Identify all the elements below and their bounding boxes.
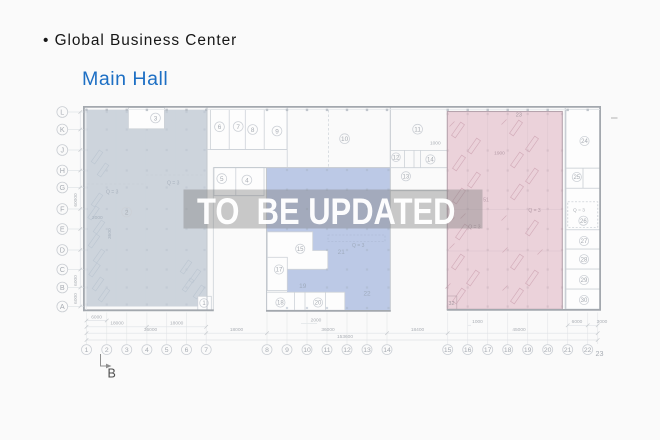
svg-text:14: 14 <box>383 347 391 354</box>
svg-text:2000: 2000 <box>311 318 322 324</box>
svg-text:9: 9 <box>275 128 279 135</box>
svg-text:22: 22 <box>363 291 371 298</box>
svg-text:21: 21 <box>338 249 346 256</box>
svg-text:8: 8 <box>251 127 255 134</box>
svg-text:36000: 36000 <box>144 327 158 333</box>
svg-text:28: 28 <box>581 257 588 263</box>
svg-text:8: 8 <box>265 347 269 354</box>
svg-text:A: A <box>60 302 65 311</box>
svg-text:45000: 45000 <box>512 327 526 333</box>
svg-text:19: 19 <box>299 283 307 290</box>
svg-text:B: B <box>60 283 65 292</box>
svg-text:11: 11 <box>323 347 330 354</box>
svg-text:15: 15 <box>297 247 304 253</box>
svg-text:6000: 6000 <box>73 275 79 286</box>
svg-text:6000: 6000 <box>73 293 79 304</box>
svg-text:Q = 3: Q = 3 <box>352 243 365 249</box>
svg-text:3600: 3600 <box>107 228 113 239</box>
svg-text:17: 17 <box>276 268 283 274</box>
svg-text:TO BE UPDATED: TO BE UPDATED <box>197 190 456 232</box>
svg-text:27: 27 <box>581 239 588 245</box>
svg-text:5: 5 <box>220 176 224 183</box>
svg-text:9: 9 <box>285 347 289 354</box>
svg-text:1: 1 <box>85 347 89 354</box>
svg-text:26: 26 <box>580 219 587 225</box>
svg-text:D: D <box>60 246 65 255</box>
svg-text:18000: 18000 <box>170 321 184 327</box>
svg-text:19: 19 <box>524 347 532 354</box>
svg-text:G: G <box>60 183 66 192</box>
svg-text:18: 18 <box>504 347 512 354</box>
svg-text:13: 13 <box>403 174 410 180</box>
svg-text:14: 14 <box>427 158 434 164</box>
svg-text:B: B <box>108 367 116 381</box>
svg-text:H: H <box>60 166 65 175</box>
svg-text:15: 15 <box>444 347 452 354</box>
svg-text:2: 2 <box>105 347 109 354</box>
svg-text:2000: 2000 <box>92 215 103 221</box>
svg-text:153600: 153600 <box>337 334 353 340</box>
svg-text:Q = 3: Q = 3 <box>528 208 541 214</box>
svg-text:1000: 1000 <box>472 319 483 325</box>
svg-text:6000: 6000 <box>572 319 583 325</box>
svg-text:23: 23 <box>596 349 604 358</box>
svg-text:1900: 1900 <box>494 150 505 156</box>
svg-text:18: 18 <box>277 301 284 307</box>
svg-text:12: 12 <box>393 155 400 161</box>
svg-text:18000: 18000 <box>110 321 124 327</box>
svg-text:20: 20 <box>544 347 552 354</box>
svg-text:3: 3 <box>125 347 129 354</box>
svg-text:6000: 6000 <box>91 314 102 320</box>
svg-text:J: J <box>61 146 65 155</box>
svg-text:L: L <box>60 108 64 117</box>
svg-text:32: 32 <box>448 301 454 307</box>
svg-text:3: 3 <box>154 115 158 122</box>
svg-text:17: 17 <box>484 347 492 354</box>
svg-text:6: 6 <box>185 347 189 354</box>
svg-text:6: 6 <box>218 124 222 131</box>
svg-text:20: 20 <box>315 301 322 307</box>
svg-text:4: 4 <box>245 177 249 184</box>
svg-text:5: 5 <box>165 347 169 354</box>
svg-text:30: 30 <box>581 298 588 304</box>
svg-text:18400: 18400 <box>411 327 425 333</box>
svg-text:11: 11 <box>414 127 421 134</box>
svg-text:F: F <box>60 205 65 214</box>
svg-text:60000: 60000 <box>73 193 79 207</box>
svg-text:10: 10 <box>303 347 311 354</box>
svg-text:K: K <box>60 125 65 134</box>
svg-text:16: 16 <box>464 347 472 354</box>
svg-text:18000: 18000 <box>230 327 244 333</box>
svg-text:36000: 36000 <box>321 327 335 333</box>
svg-text:Q = 3: Q = 3 <box>573 208 585 214</box>
svg-text:13: 13 <box>363 347 371 354</box>
svg-text:7: 7 <box>236 124 240 131</box>
svg-text:23: 23 <box>516 113 522 119</box>
svg-text:E: E <box>60 225 65 234</box>
svg-text:21: 21 <box>564 347 572 354</box>
svg-text:51: 51 <box>483 197 489 203</box>
svg-text:4: 4 <box>145 347 149 354</box>
svg-text:24: 24 <box>581 139 588 145</box>
svg-text:29: 29 <box>581 278 588 284</box>
svg-text:3000: 3000 <box>597 319 608 325</box>
svg-text:12: 12 <box>343 347 351 354</box>
svg-text:7: 7 <box>204 347 208 354</box>
svg-text:2: 2 <box>125 209 129 216</box>
svg-text:C: C <box>60 265 65 274</box>
svg-text:10: 10 <box>341 136 349 143</box>
svg-text:25: 25 <box>573 175 580 181</box>
svg-text:22: 22 <box>584 347 592 354</box>
svg-text:Q = 3: Q = 3 <box>106 190 119 196</box>
svg-text:1000: 1000 <box>430 141 441 147</box>
svg-text:Q = 3: Q = 3 <box>167 181 180 187</box>
